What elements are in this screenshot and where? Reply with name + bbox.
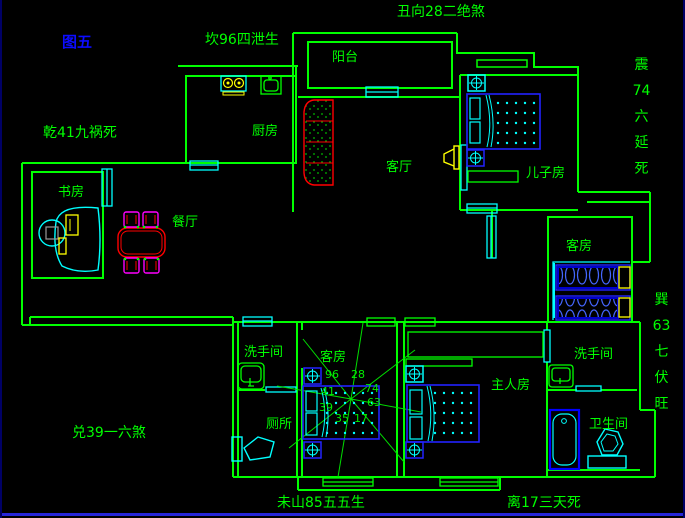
- room-washroom-west: 洗手间: [244, 346, 283, 360]
- fengshui-wei: 未山85五五生: [277, 496, 365, 510]
- nightstand: [304, 442, 321, 458]
- room-toilet: 厕所: [266, 418, 292, 432]
- room-washroom-east: 洗手间: [574, 348, 613, 362]
- compass-number: 17: [354, 413, 368, 424]
- fengshui-li: 离17三天死: [507, 496, 581, 510]
- pillow: [410, 417, 422, 439]
- sink-east: [549, 365, 573, 387]
- desk: [39, 207, 100, 271]
- chair: [124, 258, 139, 273]
- room-balcony: 阳台: [332, 51, 358, 65]
- pillow: [619, 267, 630, 288]
- compass-number: 63: [367, 397, 381, 408]
- pillow: [306, 413, 317, 435]
- compass-number: 39: [319, 402, 333, 413]
- shelf: [406, 359, 472, 366]
- nightstand: [304, 368, 321, 384]
- son-bed: [467, 94, 540, 149]
- chair: [144, 258, 159, 273]
- pillow: [619, 298, 630, 317]
- room-master: 主人房: [491, 379, 530, 393]
- pillow: [470, 122, 480, 143]
- master-bed: [407, 385, 479, 442]
- bottom-border-line: [0, 513, 685, 516]
- left-border-line: [0, 0, 2, 518]
- monitor: [66, 215, 78, 235]
- compass-number: 74: [365, 383, 379, 394]
- toilet-east: [588, 429, 626, 468]
- room-son: 儿子房: [526, 167, 565, 181]
- pillow: [470, 98, 480, 119]
- toilet-door: [266, 387, 296, 392]
- stove: [221, 76, 246, 95]
- room-dining: 餐厅: [172, 216, 198, 230]
- fengshui-zhen: 震74六延死: [632, 52, 651, 182]
- sink-west: [238, 363, 264, 389]
- tv: [444, 146, 459, 169]
- sofa: [304, 100, 333, 185]
- compass-number: 35: [335, 413, 349, 424]
- master-door: [544, 330, 550, 362]
- nightstand: [406, 366, 423, 382]
- figure-label: 图五: [62, 35, 92, 49]
- fengshui-xun: 巽63七伏旺: [652, 287, 671, 417]
- compass-number: 41: [321, 386, 335, 397]
- chair: [124, 212, 139, 227]
- dining-set: [118, 212, 165, 273]
- bathtub: [550, 410, 579, 469]
- desk-chair: [39, 220, 65, 246]
- room-kitchen: 厨房: [252, 125, 278, 139]
- pillow: [306, 391, 317, 411]
- room-guest-east: 客房: [566, 240, 592, 254]
- compass-number: 28: [351, 369, 365, 380]
- nightstand: [468, 75, 485, 91]
- room-bathroom: 卫生间: [589, 418, 628, 432]
- dining-table: [118, 228, 165, 257]
- shelf: [468, 171, 518, 182]
- room-guest-center: 客房: [320, 351, 346, 365]
- chair: [143, 212, 158, 227]
- kitchen-sink: [261, 76, 281, 94]
- fengshui-qian: 乾41九祸死: [43, 126, 117, 140]
- nightstand: [467, 150, 484, 166]
- room-living: 客厅: [386, 161, 412, 175]
- fengshui-kan: 坎96四泄生: [205, 33, 279, 47]
- fengshui-dui: 兑39一六煞: [72, 426, 146, 440]
- nightstand: [406, 442, 423, 458]
- compass-number: 96: [325, 369, 339, 380]
- fengshui-chou: 丑向28二绝煞: [397, 5, 485, 19]
- room-study: 书房: [58, 186, 84, 200]
- floorplan-canvas: 图五 坎96四泄生 丑向28二绝煞 乾41九祸死 兑39一六煞 未山85五五生 …: [0, 0, 685, 518]
- wardrobe: [408, 332, 543, 357]
- son-room-side-window: [461, 145, 467, 190]
- guest-beds: [553, 262, 630, 320]
- washroom-east-door: [576, 386, 601, 391]
